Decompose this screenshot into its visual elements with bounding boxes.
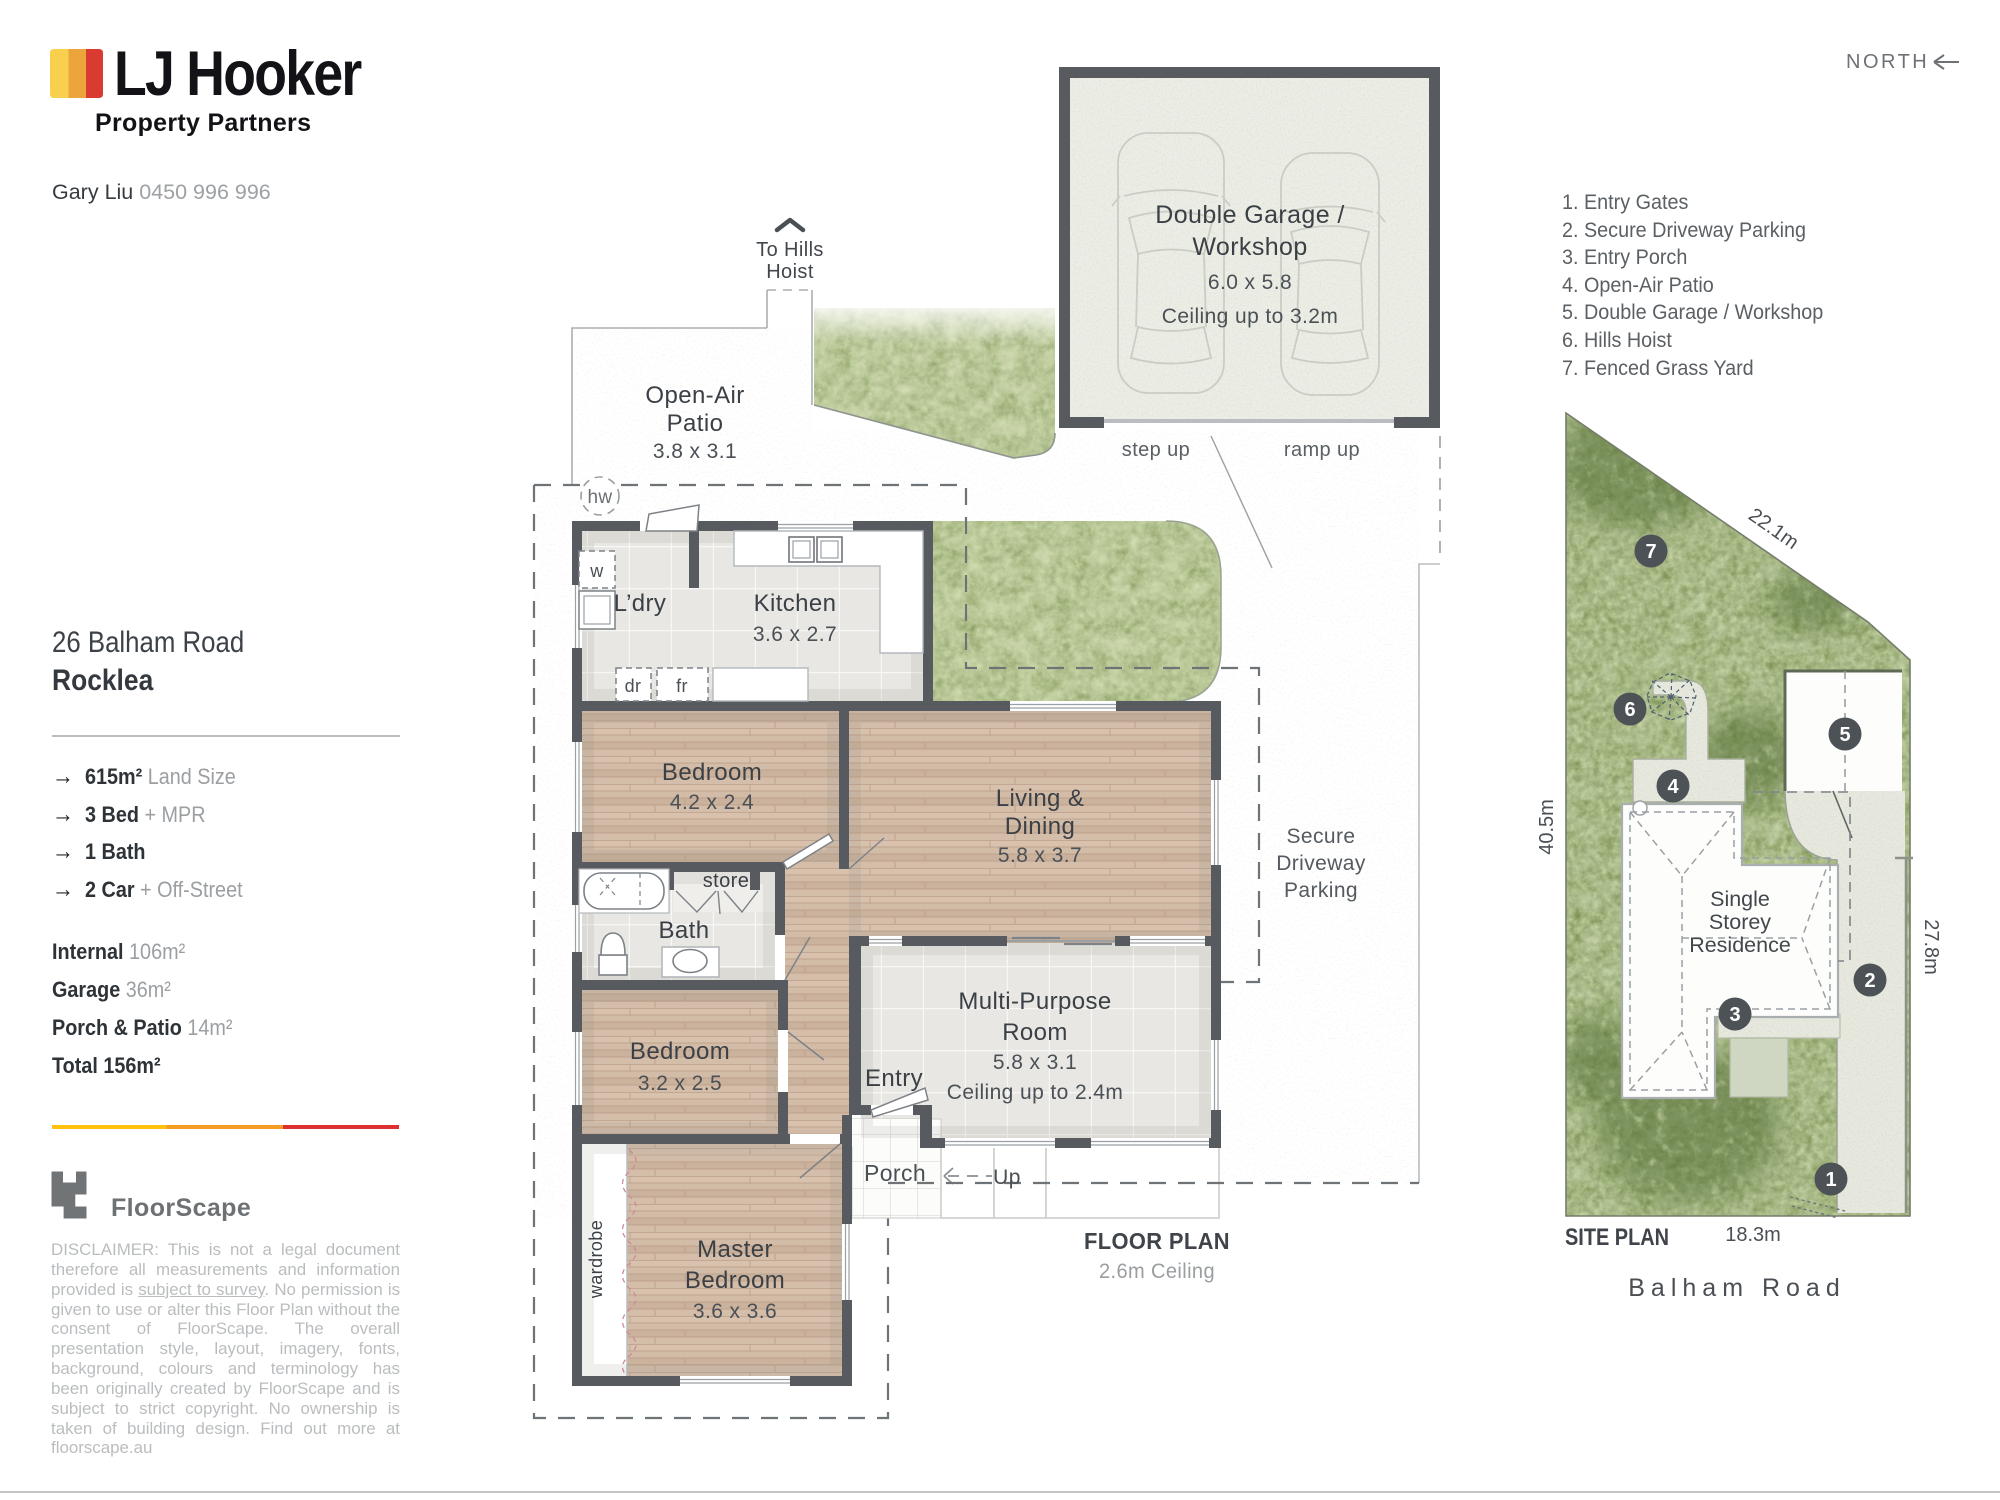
svg-text:FLOOR PLAN: FLOOR PLAN [1084, 1228, 1230, 1254]
svg-text:Secure: Secure [1287, 825, 1356, 848]
svg-text:w: w [589, 561, 604, 581]
svg-text:Open-Air: Open-Air [645, 382, 744, 409]
svg-text:ramp up: ramp up [1284, 439, 1360, 461]
svg-text:Kitchen: Kitchen [754, 590, 837, 617]
svg-text:18.3m: 18.3m [1725, 1224, 1781, 1246]
svg-text:5.8 x 3.1: 5.8 x 3.1 [993, 1051, 1077, 1074]
svg-text:Bedroom: Bedroom [662, 759, 762, 786]
svg-text:Ceiling up to 3.2m: Ceiling up to 3.2m [1162, 305, 1338, 328]
svg-text:step up: step up [1122, 439, 1190, 461]
svg-text:Workshop: Workshop [1192, 233, 1307, 261]
svg-text:1: 1 [1825, 1169, 1836, 1191]
svg-text:Residence: Residence [1689, 933, 1791, 957]
svg-text:Ceiling up to 2.4m: Ceiling up to 2.4m [947, 1081, 1123, 1104]
svg-text:Dining: Dining [1005, 813, 1075, 840]
svg-text:2.6m Ceiling: 2.6m Ceiling [1099, 1260, 1215, 1283]
svg-text:Double Garage /: Double Garage / [1155, 201, 1344, 229]
svg-text:3.8 x 3.1: 3.8 x 3.1 [653, 440, 737, 463]
svg-text:Balham Road: Balham Road [1628, 1274, 1845, 1302]
svg-text:Patio: Patio [667, 410, 724, 437]
svg-text:2: 2 [1864, 970, 1875, 992]
svg-text:4.2 x 2.4: 4.2 x 2.4 [670, 791, 754, 814]
svg-text:Master: Master [697, 1236, 773, 1263]
svg-text:hw: hw [587, 487, 612, 508]
svg-text:store: store [703, 870, 749, 892]
svg-text:3.2 x 2.5: 3.2 x 2.5 [638, 1072, 722, 1095]
svg-text:3.6 x 2.7: 3.6 x 2.7 [753, 623, 837, 646]
svg-text:Porch: Porch [864, 1160, 926, 1186]
svg-text:5.8 x 3.7: 5.8 x 3.7 [998, 844, 1082, 867]
svg-text:wardrobe: wardrobe [586, 1220, 606, 1299]
svg-text:L’dry: L’dry [614, 590, 667, 617]
svg-text:7: 7 [1645, 541, 1656, 563]
svg-text:3.6 x 3.6: 3.6 x 3.6 [693, 1300, 777, 1323]
svg-text:SITE PLAN: SITE PLAN [1565, 1224, 1669, 1251]
svg-text:6: 6 [1624, 699, 1635, 721]
svg-text:5: 5 [1839, 724, 1850, 746]
svg-text:Parking: Parking [1284, 879, 1358, 902]
svg-text:Living &: Living & [996, 785, 1085, 812]
svg-text:27.8m: 27.8m [1920, 919, 1942, 975]
svg-text:Bedroom: Bedroom [685, 1267, 785, 1294]
svg-text:Single: Single [1710, 887, 1770, 911]
svg-text:To Hills: To Hills [756, 239, 824, 261]
svg-text:Entry: Entry [865, 1065, 923, 1092]
svg-text:Bedroom: Bedroom [630, 1038, 730, 1065]
svg-text:Up: Up [993, 1166, 1021, 1189]
svg-text:Multi-Purpose: Multi-Purpose [958, 988, 1111, 1015]
svg-text:Bath: Bath [659, 917, 710, 944]
svg-text:3: 3 [1729, 1004, 1740, 1026]
svg-text:Room: Room [1002, 1019, 1068, 1046]
svg-text:6.0 x 5.8: 6.0 x 5.8 [1208, 271, 1292, 294]
svg-text:4: 4 [1667, 776, 1679, 798]
svg-text:Storey: Storey [1709, 910, 1771, 934]
svg-text:fr: fr [676, 676, 688, 696]
svg-text:40.5m: 40.5m [1536, 799, 1558, 855]
svg-text:Driveway: Driveway [1276, 852, 1366, 875]
svg-text:dr: dr [625, 676, 642, 696]
svg-text:Hoist: Hoist [766, 261, 814, 283]
